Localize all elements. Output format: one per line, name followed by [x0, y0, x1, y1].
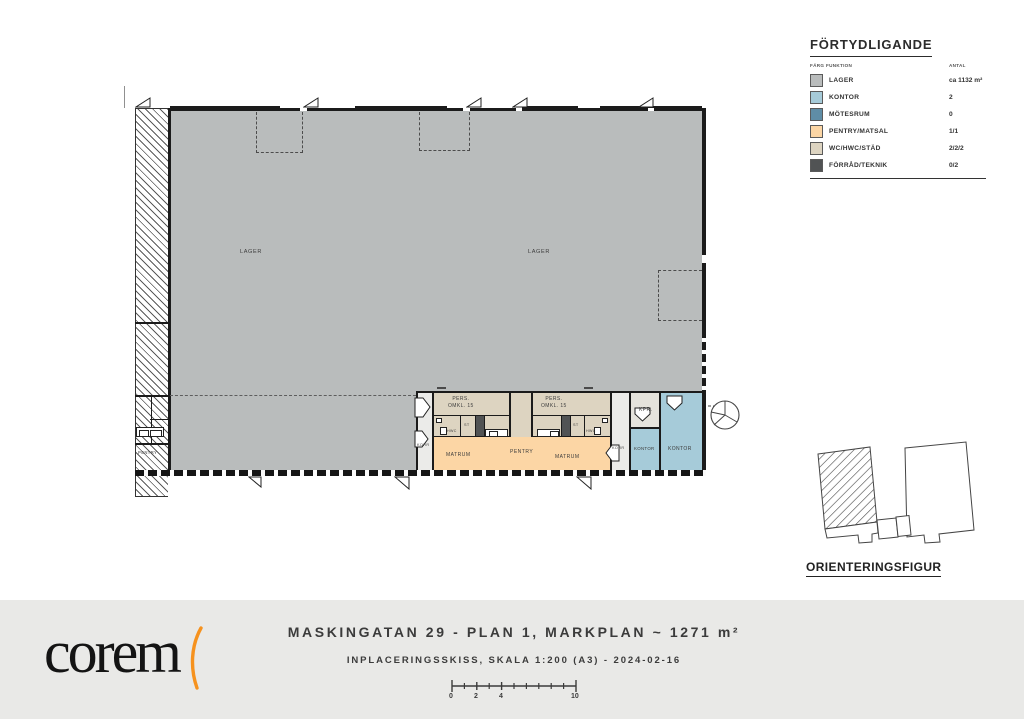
legend-swatch-kontor: [810, 91, 823, 104]
legend-row: MÖTESRUM 0: [810, 108, 986, 125]
door-symbol: [666, 395, 683, 411]
door-symbol: [414, 397, 431, 418]
korr-label: KORR: [417, 443, 430, 447]
kontor-label: KONTOR: [634, 446, 655, 451]
legend-swatch-forrad: [810, 159, 823, 172]
legend-col-antal: ANTAL: [949, 63, 966, 68]
spiral-stair: [706, 398, 742, 434]
scale-label-4: 4: [499, 693, 503, 700]
legend-row: KONTOR 2: [810, 91, 986, 108]
matrum-label: MATRUM: [446, 452, 471, 458]
scale-bar: 0 2 4 10: [449, 678, 581, 694]
legend-col-funktion: FUNKTION: [826, 63, 852, 68]
bottom-wall: [135, 470, 706, 476]
exit-door-icon: [303, 97, 319, 108]
footer: corem MASKINGATAN 29 - PLAN 1, MARKPLAN …: [0, 600, 1024, 719]
pentry-label: PENTRY: [510, 449, 533, 455]
korr-label: KORR: [612, 446, 625, 450]
recess-outline: [658, 270, 702, 321]
lager-label: LAGER: [528, 249, 550, 255]
scale-label-0: 0: [449, 693, 453, 700]
legend-row: LAGER ca 1132 m²: [810, 74, 986, 91]
kpr-label: KPR.: [639, 407, 652, 413]
st-label: ST: [464, 423, 470, 427]
legend-col-farg: FÄRG: [810, 63, 824, 68]
legend-swatch-pentry: [810, 125, 823, 138]
omkl-label: PERS.OMKL. 15: [448, 396, 474, 409]
orientation-figure: ORIENTERINGSFIGUR: [806, 438, 981, 577]
counter: [537, 429, 560, 437]
door-swing: [394, 476, 410, 490]
legend-title: FÖRTYDLIGANDE: [810, 37, 932, 57]
drawing-subtitle: INPLACERINGSSKISS, SKALA 1:200 (A3) - 20…: [252, 655, 776, 666]
scale-label-2: 2: [474, 693, 478, 700]
lager-label: LAGER: [240, 249, 262, 255]
hwc-label: HWC: [586, 429, 596, 433]
legend-row: WC/HWC/STÄD 2/2/2: [810, 142, 986, 159]
legend: FÖRTYDLIGANDE FÄRG FUNKTION ANTAL LAGER …: [810, 36, 986, 57]
kontor-label: KONTOR: [668, 446, 692, 452]
sink: [602, 418, 608, 423]
teknik-room: [476, 416, 484, 437]
recess-outline: [256, 112, 303, 153]
zone-line: [170, 395, 416, 396]
corem-logo: corem: [44, 622, 179, 682]
legend-swatch-lager: [810, 74, 823, 87]
teknik-room: [562, 416, 570, 437]
legend-row: PENTRY/MATSAL 1/1: [810, 125, 986, 142]
door-swing: [248, 476, 262, 488]
legend-row: FÖRRÅD/TEKNIK 0/2: [810, 159, 986, 176]
recess-outline: [419, 112, 470, 151]
exit-door-icon: [466, 97, 482, 108]
st-label: ST: [573, 423, 579, 427]
matrum-label: MATRUM: [555, 454, 580, 460]
dimension-tick: [124, 86, 125, 108]
exit-door-icon: [135, 97, 151, 108]
exit-door-icon: [512, 97, 528, 108]
hwc-label: HWC: [447, 429, 457, 433]
drawing-title: MASKINGATAN 29 - PLAN 1, MARKPLAN ~ 1271…: [252, 624, 776, 640]
sink: [436, 418, 442, 423]
neighbor-pentry-label: PENTRY: [138, 450, 157, 455]
orientation-label: ORIENTERINGSFIGUR: [806, 560, 941, 577]
corem-logo-text: corem: [44, 619, 179, 685]
footer-titles: MASKINGATAN 29 - PLAN 1, MARKPLAN ~ 1271…: [252, 624, 776, 666]
scale-label-10: 10: [571, 693, 579, 700]
omkl-label: PERS.OMKL. 15: [541, 396, 567, 409]
counter: [485, 429, 508, 437]
legend-bottom-rule: [810, 178, 986, 179]
legend-swatch-wc: [810, 142, 823, 155]
legend-swatch-motesrum: [810, 108, 823, 121]
toilet: [440, 427, 447, 435]
door-swing: [576, 476, 592, 490]
corem-logo-mark: [186, 626, 206, 690]
exit-door-icon: [638, 97, 654, 108]
